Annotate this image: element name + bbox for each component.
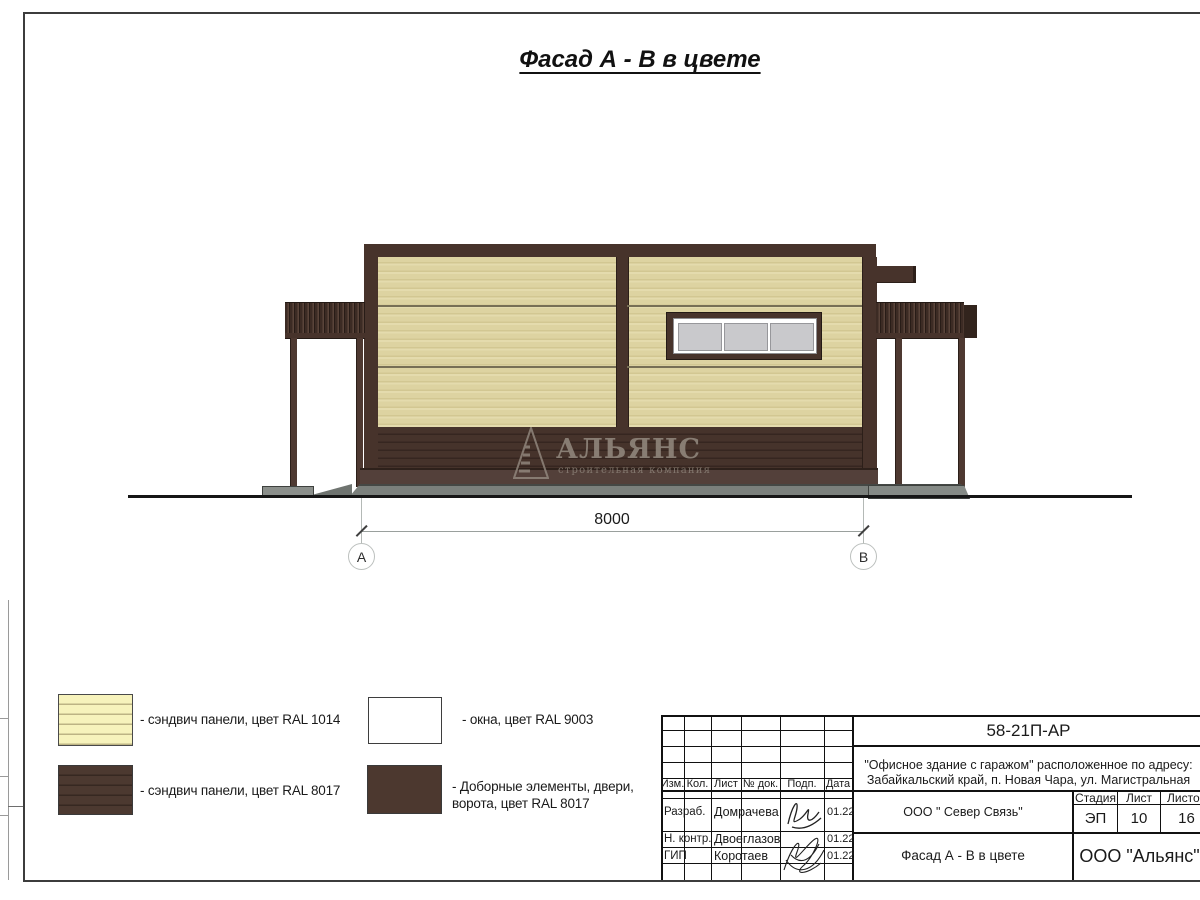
canopy-left-post: [356, 338, 363, 487]
canopy-left-fascia: [285, 302, 365, 334]
titleblock-line: [661, 730, 852, 731]
alliance-logo-icon: [513, 427, 549, 479]
canopy-left-post: [290, 338, 297, 487]
signature-1: [782, 796, 824, 830]
tb-org-middle: ООО " Север Связь": [854, 792, 1072, 832]
titleblock-line: [852, 745, 1200, 747]
tb-col-kol: Кол.: [684, 778, 711, 790]
canopy-right-post: [895, 338, 902, 487]
axis-marker-a: А: [348, 543, 375, 570]
legend-swatch-ral1014: [58, 694, 133, 746]
margin-line: [8, 600, 9, 880]
window-pane: [770, 323, 814, 351]
extension-line-a: [361, 498, 362, 543]
titleblock-line: [661, 746, 852, 747]
panel-joint: [627, 366, 862, 368]
tb-stage-label: Стадия: [1074, 791, 1117, 804]
watermark-name: АЛЬЯНС: [556, 436, 701, 463]
axis-marker-b: В: [850, 543, 877, 570]
canopy-right-fascia: [876, 302, 964, 334]
legend-label: - Доборные элементы, двери,: [452, 780, 634, 794]
window-inner-frame: [673, 318, 817, 354]
legend-label: - сэндвич панели, цвет RAL 1014: [140, 713, 340, 727]
tb-name: Домрачева: [714, 806, 779, 819]
legend-swatch-ral9003: [368, 697, 442, 744]
extension-line-b: [863, 498, 864, 543]
canopy-left-rail: [285, 333, 365, 339]
tb-col-dok: № док.: [741, 778, 780, 790]
panel-joint: [378, 366, 616, 368]
legend-swatch-ral8017-solid: [367, 765, 442, 814]
tb-col-list: Лист: [711, 778, 741, 790]
roof-beam-right: [876, 266, 916, 283]
tb-col-izm: Изм.: [661, 778, 684, 790]
dimension-line: [361, 531, 864, 532]
canopy-right-post: [958, 338, 965, 487]
axis-label-b: В: [859, 549, 868, 565]
tb-sheets-label: Листов: [1161, 791, 1200, 804]
tb-org-right: ООО "Альянс": [1074, 834, 1200, 878]
tb-date: 01.22: [827, 807, 855, 818]
legend-swatch-ral8017: [58, 765, 133, 815]
legend-label: ворота, цвет RAL 8017: [452, 797, 589, 811]
tb-sheet-value: 10: [1118, 806, 1160, 830]
tb-stage-value: ЭП: [1074, 806, 1117, 830]
window-pane: [678, 323, 722, 351]
dimension-value: 8000: [562, 512, 662, 528]
ground-line: [128, 495, 1132, 498]
tb-project-line2: Забайкальский край, п. Новая Чара, ул. М…: [852, 773, 1200, 787]
drawing-sheet: { "title": {"text": "Фасад А - В в цвете…: [0, 0, 1200, 900]
tb-doc-number: 58-21П-АР: [852, 716, 1200, 745]
margin-tick: [0, 776, 8, 777]
tb-col-podp: Подп.: [780, 778, 824, 790]
tb-date: 01.22: [827, 834, 855, 845]
window-pane: [724, 323, 768, 351]
frame-left-line: [23, 12, 25, 882]
tb-project-line1: "Офисное здание с гаражом" расположенное…: [852, 758, 1200, 772]
margin-tick: [0, 815, 8, 816]
building-corner-right: [862, 257, 877, 468]
tb-drawing-name: Фасад А - В в цвете: [854, 834, 1072, 878]
legend-label: - окна, цвет RAL 9003: [462, 713, 593, 727]
margin-tick: [0, 718, 8, 719]
margin-divider: [8, 806, 23, 807]
titleblock-line: [661, 762, 852, 763]
tb-role: Разраб.: [664, 807, 705, 819]
page-title: Фасад А - В в цвете: [420, 48, 860, 72]
watermark-subtitle: строительная компания: [558, 466, 711, 476]
wall-panels-left: [378, 257, 616, 427]
frame-top-line: [23, 12, 1200, 14]
tb-sheets-value: 16: [1161, 806, 1200, 830]
window-frame: [666, 312, 822, 360]
axis-label-a: А: [357, 549, 366, 565]
building-corner-left: [364, 257, 379, 468]
tb-role: Н. контр.: [664, 834, 711, 846]
canopy-right-rail: [876, 333, 964, 339]
tb-name: Двоеглазов: [714, 833, 780, 846]
tb-name: Коротаев: [714, 850, 768, 863]
frame-bottom-line: [23, 880, 1200, 882]
tb-col-data: Дата: [824, 778, 852, 790]
tb-role: ГИП: [664, 851, 687, 863]
panel-joint: [378, 305, 616, 307]
tb-sheet-label: Лист: [1118, 791, 1160, 804]
tb-date: 01.22: [827, 851, 855, 862]
canopy-right-endcap: [964, 305, 977, 338]
signature-2: [779, 830, 827, 878]
panel-joint: [627, 305, 862, 307]
legend-label: - сэндвич панели, цвет RAL 8017: [140, 784, 340, 798]
